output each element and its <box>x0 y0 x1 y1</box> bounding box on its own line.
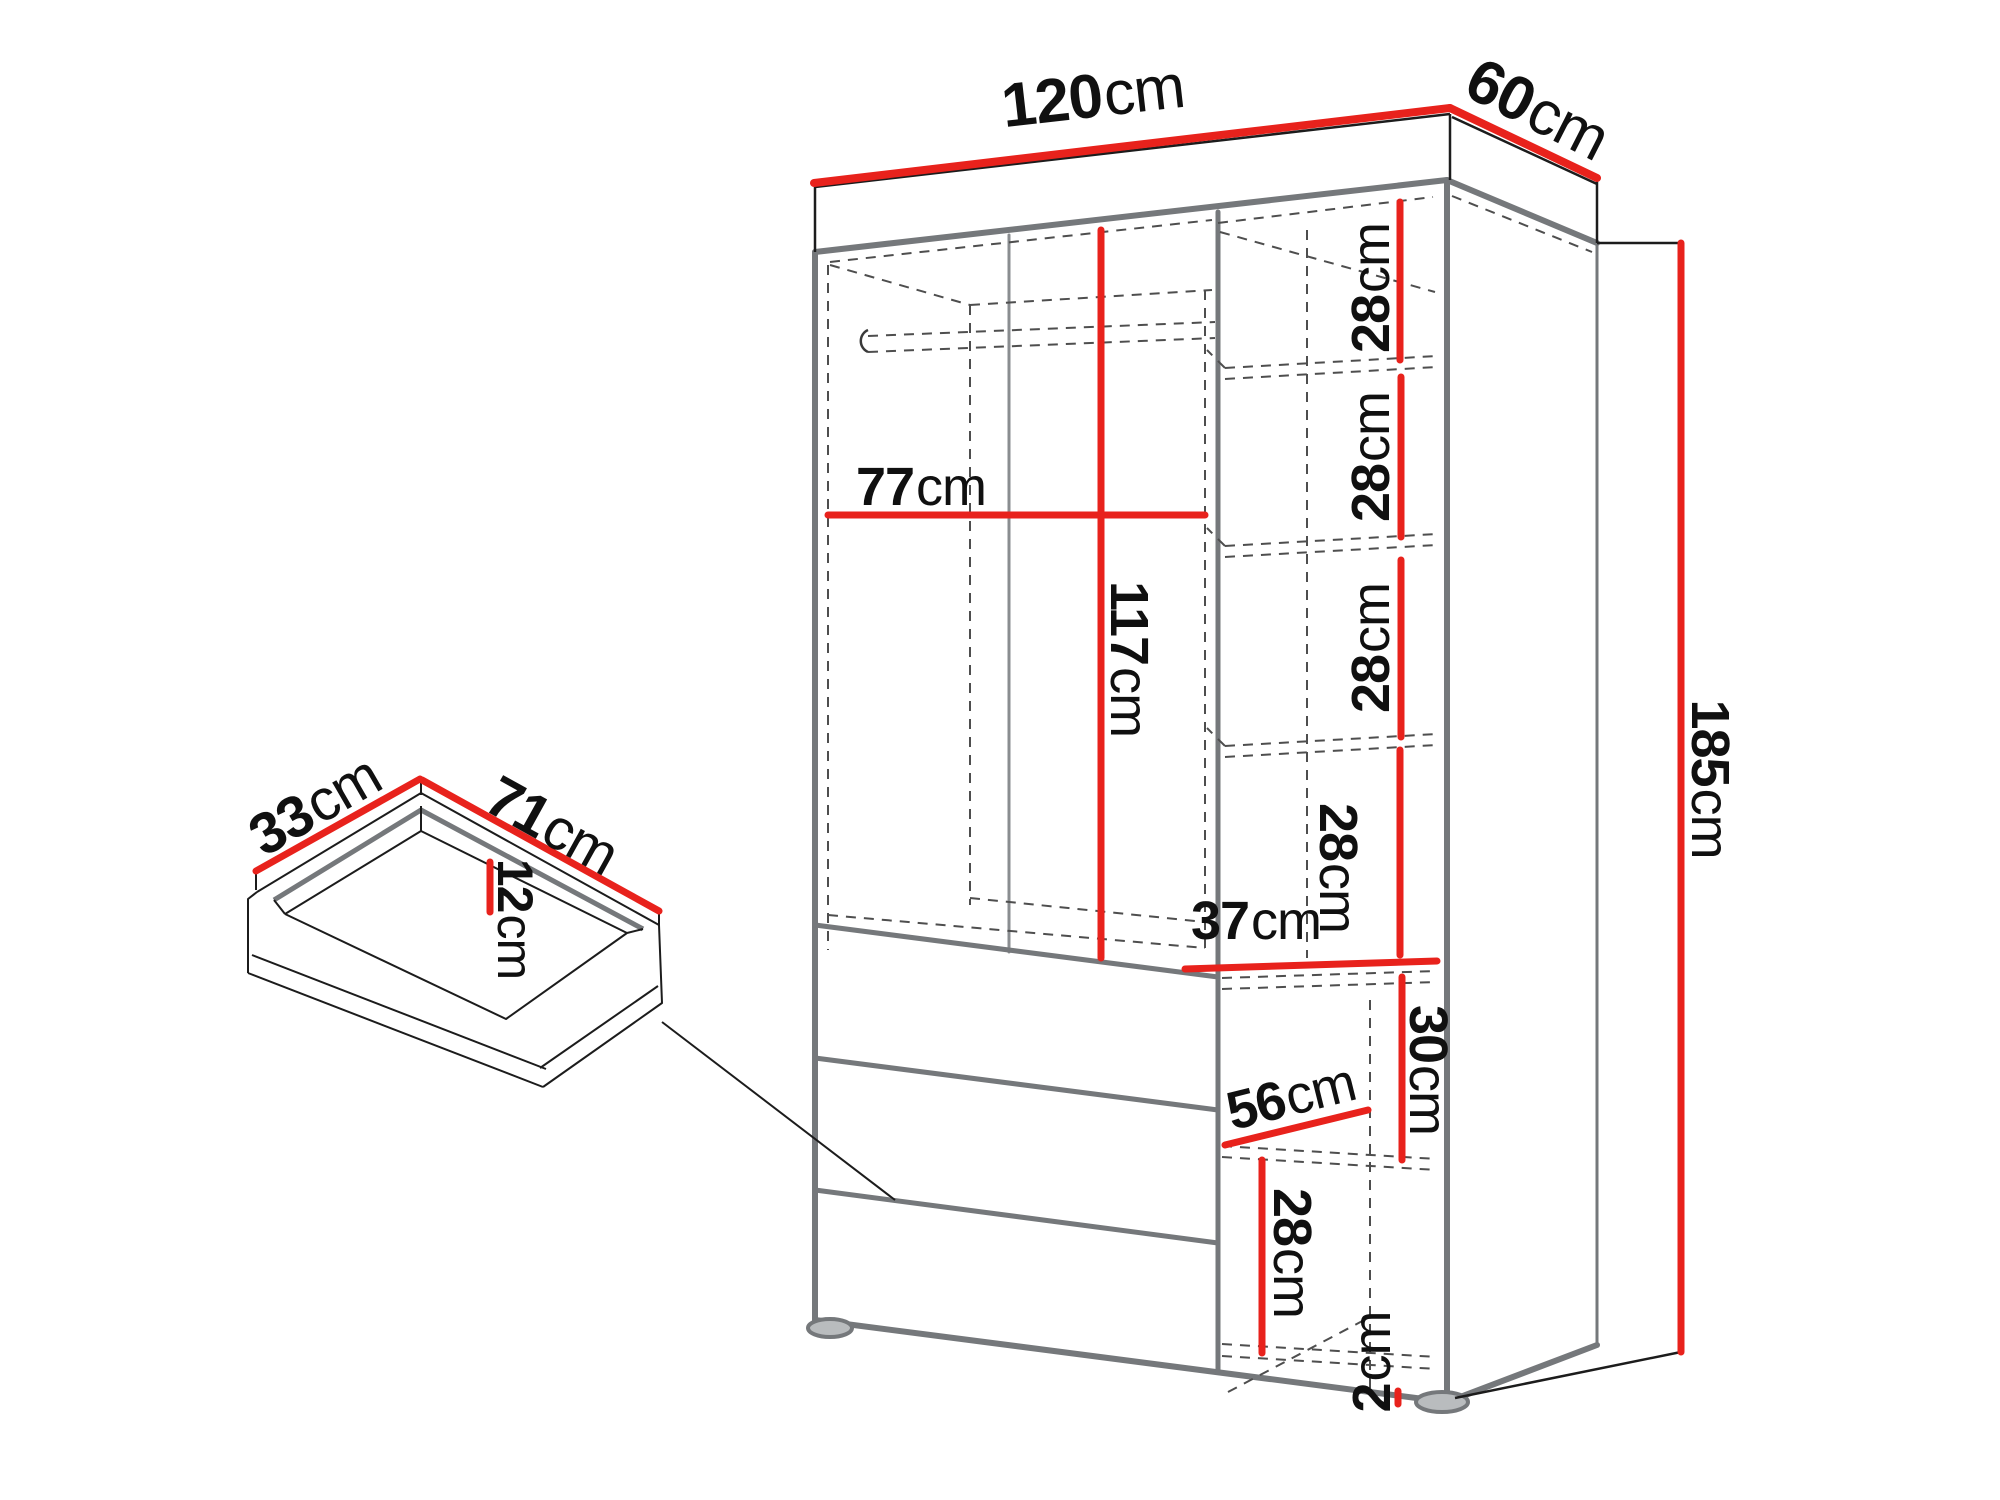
diagram-canvas: 120cm 60cm 185cm 77cm 117cm 28cm 28cm 28… <box>0 0 2000 1500</box>
hanger-hook-icon <box>861 330 868 352</box>
dim-label-shelf-28cm-3: 28cm <box>1344 583 1398 713</box>
wardrobe-interior-dashed <box>828 196 1592 1392</box>
dim-label-inner-117cm: 117cm <box>1102 581 1156 737</box>
dim-label-shelf-28cm-1: 28cm <box>1344 223 1398 353</box>
dim-label-height-185cm: 185cm <box>1683 699 1737 858</box>
dim-line-37 <box>1185 961 1437 969</box>
dim-label-bottom-28cm: 28cm <box>1265 1188 1319 1318</box>
dim-label-section-30cm: 30cm <box>1401 1005 1455 1135</box>
dim-label-opening-37cm: 37cm <box>1191 894 1321 948</box>
drawer-callout-line <box>662 1022 895 1200</box>
dim-label-foot-2cm: 2cm <box>1345 1311 1399 1412</box>
dim-label-inner-77cm: 77cm <box>856 460 986 514</box>
dim-label-shelf-28cm-2: 28cm <box>1344 392 1398 522</box>
dim-label-drawer-12cm: 12cm <box>490 859 540 979</box>
